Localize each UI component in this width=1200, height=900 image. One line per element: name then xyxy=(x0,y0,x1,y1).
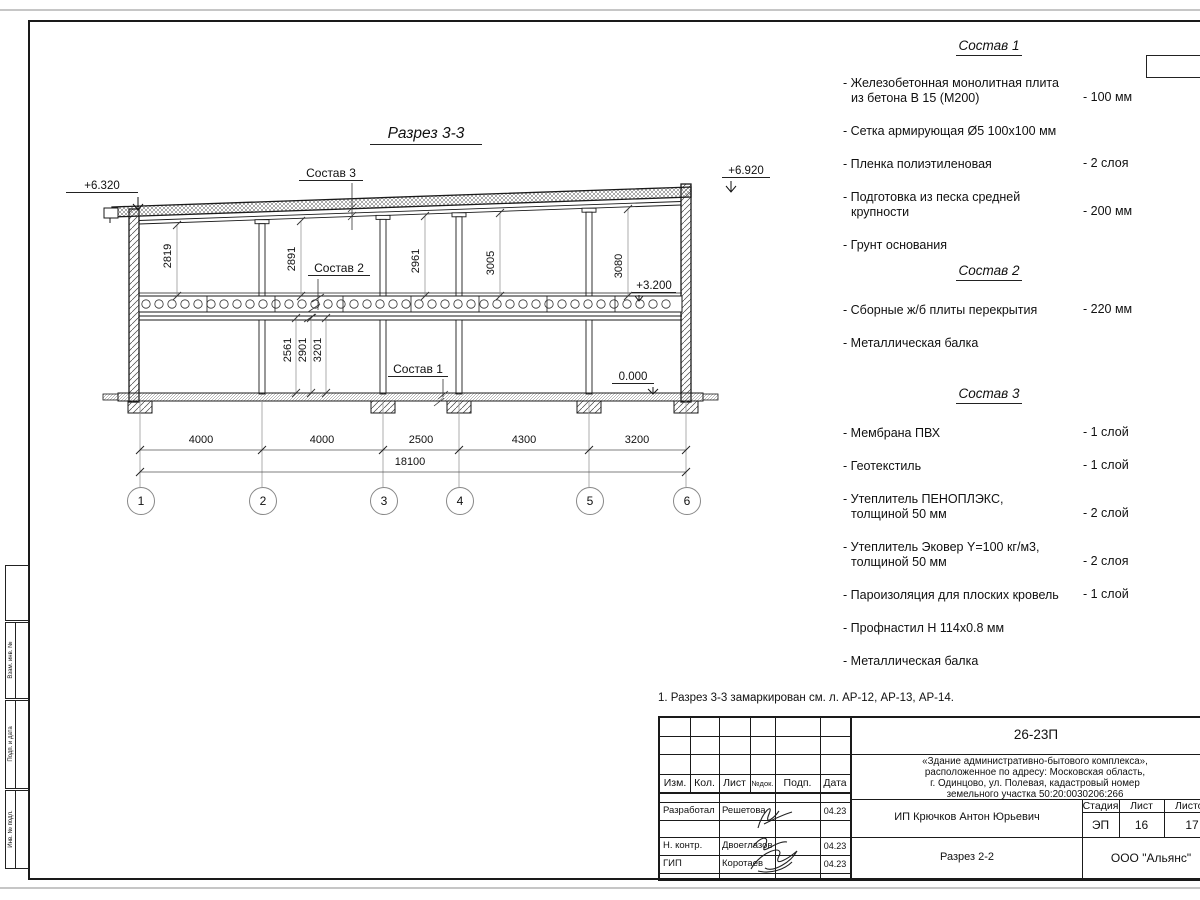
axis-bubble-2: 2 xyxy=(249,487,277,515)
stage-value: ЭП xyxy=(1082,818,1119,832)
col-kol: Кол. xyxy=(690,777,719,789)
axis-bubble-5: 5 xyxy=(576,487,604,515)
section-title: Разрез 3-3 xyxy=(370,125,482,145)
role-label: ГИП xyxy=(663,858,719,869)
list-item: - Геотекстиль - 1 слой xyxy=(830,459,1148,474)
role-name: Двоеглазов xyxy=(722,840,775,851)
col-podp: Подп. xyxy=(775,777,820,789)
role-label: Н. контр. xyxy=(663,840,719,851)
elevation-mark-left: +6.320 xyxy=(66,180,138,193)
object-description: «Здание административно-бытового комплек… xyxy=(852,756,1200,800)
span-dim-5: 3200 xyxy=(612,434,662,446)
sheet-col: Лист xyxy=(1119,800,1164,812)
axis-bubble-4: 4 xyxy=(446,487,474,515)
total-dim: 18100 xyxy=(385,456,435,468)
list-item: - Сборные ж/б плиты перекрытия - 220 мм xyxy=(830,303,1148,318)
span-dim-3: 2500 xyxy=(396,434,446,446)
dim-upper-4: 3005 xyxy=(485,243,497,283)
drawing-note: 1. Разрез 3-3 замаркирован см. л. АР-12,… xyxy=(658,692,954,704)
dim-lower-2: 2901 xyxy=(297,330,309,370)
span-dim-1: 4000 xyxy=(176,434,226,446)
sostav3-title: Состав 3 xyxy=(956,386,1023,404)
dim-lower-3: 3201 xyxy=(312,330,324,370)
elevation-mark-floor: +3.200 xyxy=(632,280,676,293)
footings xyxy=(128,401,698,413)
floor-slab xyxy=(139,293,682,320)
sostav2-title: Состав 2 xyxy=(956,263,1023,281)
sheet-name: Разрез 2-2 xyxy=(852,851,1082,863)
list-item: - Сетка армирующая Ø5 100x100 мм xyxy=(830,124,1148,139)
list-item: - Мембрана ПВХ - 1 слой xyxy=(830,426,1148,441)
col-ndok: №док. xyxy=(750,779,775,788)
dim-upper-3: 2961 xyxy=(410,241,422,281)
list-item: - Утеплитель Эковер Y=100 кг/м3,толщиной… xyxy=(830,540,1148,570)
organization: ООО "Альянс" xyxy=(1082,851,1200,865)
span-dim-4: 4300 xyxy=(499,434,549,446)
list-item: - Грунт основания xyxy=(830,238,1148,253)
sostav3-label: Состав 3 xyxy=(299,166,363,181)
list-item: - Утеплитель ПЕНОПЛЭКС,толщиной 50 мм - … xyxy=(830,492,1148,522)
list-item: - Металлическая балка xyxy=(830,336,1148,351)
axis-bubble-3: 3 xyxy=(370,487,398,515)
list-item: - Пленка полиэтиленовая - 2 слоя xyxy=(830,157,1148,172)
sostav1-label: Состав 1 xyxy=(388,362,448,377)
title-block: Изм. Кол. Лист №док. Подп. Дата Разработ… xyxy=(658,716,1200,881)
sostav1-list: Состав 1 - Железобетонная монолитная пли… xyxy=(830,38,1148,253)
axis-bubble-1: 1 xyxy=(127,487,155,515)
roof xyxy=(104,187,691,224)
role-name: Коротаев xyxy=(722,858,775,869)
sostav1-title: Состав 1 xyxy=(956,38,1023,56)
sostav2-list: Состав 2 - Сборные ж/б плиты перекрытия … xyxy=(830,263,1148,351)
role-name: Решетова xyxy=(722,805,775,816)
role-label: Разработал xyxy=(663,805,719,816)
col-izm: Изм. xyxy=(660,777,690,789)
ground-slab xyxy=(103,393,718,401)
role-date: 04.23 xyxy=(820,806,850,816)
col-list: Лист xyxy=(719,777,750,789)
list-item: - Железобетонная монолитная плитаиз бето… xyxy=(830,76,1148,106)
dim-upper-1: 2819 xyxy=(162,236,174,276)
sheets-col: Листов xyxy=(1164,800,1200,812)
customer: ИП Крючков Антон Юрьевич xyxy=(852,811,1082,823)
role-date: 04.23 xyxy=(820,859,850,869)
sheet-value: 16 xyxy=(1119,818,1164,832)
span-dim-2: 4000 xyxy=(297,434,347,446)
role-date: 04.23 xyxy=(820,841,850,851)
dim-upper-5: 3080 xyxy=(613,246,625,286)
doc-code: 26-23П xyxy=(852,727,1200,742)
list-item: - Металлическая балка xyxy=(830,654,1148,669)
elevation-mark-ground: 0.000 xyxy=(612,371,654,384)
axis-bubble-6: 6 xyxy=(673,487,701,515)
stage-col: Стадия xyxy=(1082,800,1119,812)
list-item: - Профнастил Н 114x0.8 мм xyxy=(830,621,1148,636)
sostav2-label: Состав 2 xyxy=(308,261,370,276)
dim-lower-1: 2561 xyxy=(282,330,294,370)
sostav3-list: Состав 3 - Мембрана ПВХ - 1 слой - Геоте… xyxy=(830,386,1148,669)
sheets-value: 17 xyxy=(1164,818,1200,832)
elevation-mark-right: +6.920 xyxy=(722,165,770,178)
list-item: - Подготовка из песка среднейкрупности -… xyxy=(830,190,1148,220)
dim-upper-2: 2891 xyxy=(286,239,298,279)
columns-upper xyxy=(255,208,596,296)
col-data: Дата xyxy=(820,777,850,789)
drawing-sheet: Взам. инв. № Подп. и дата Инв. № подл. xyxy=(0,0,1200,900)
list-item: - Пароизоляция для плоских кровель - 1 с… xyxy=(830,588,1148,603)
